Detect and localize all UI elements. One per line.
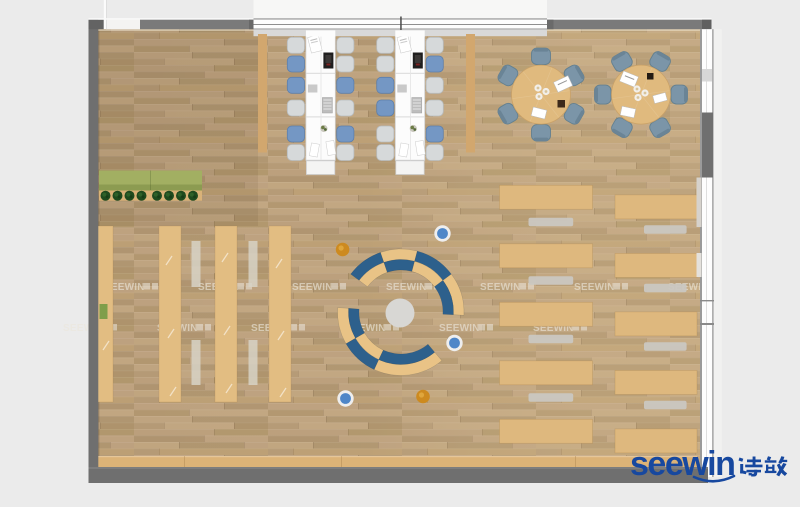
svg-text:SEEWIN: SEEWIN xyxy=(292,282,333,293)
svg-text:SEEWIN: SEEWIN xyxy=(574,282,615,293)
svg-text:SEEWIN: SEEWIN xyxy=(480,282,521,293)
svg-text:seewin: seewin xyxy=(630,445,734,483)
svg-text:SEEWIN: SEEWIN xyxy=(386,282,427,293)
svg-text:SEEWIN: SEEWIN xyxy=(439,323,480,334)
